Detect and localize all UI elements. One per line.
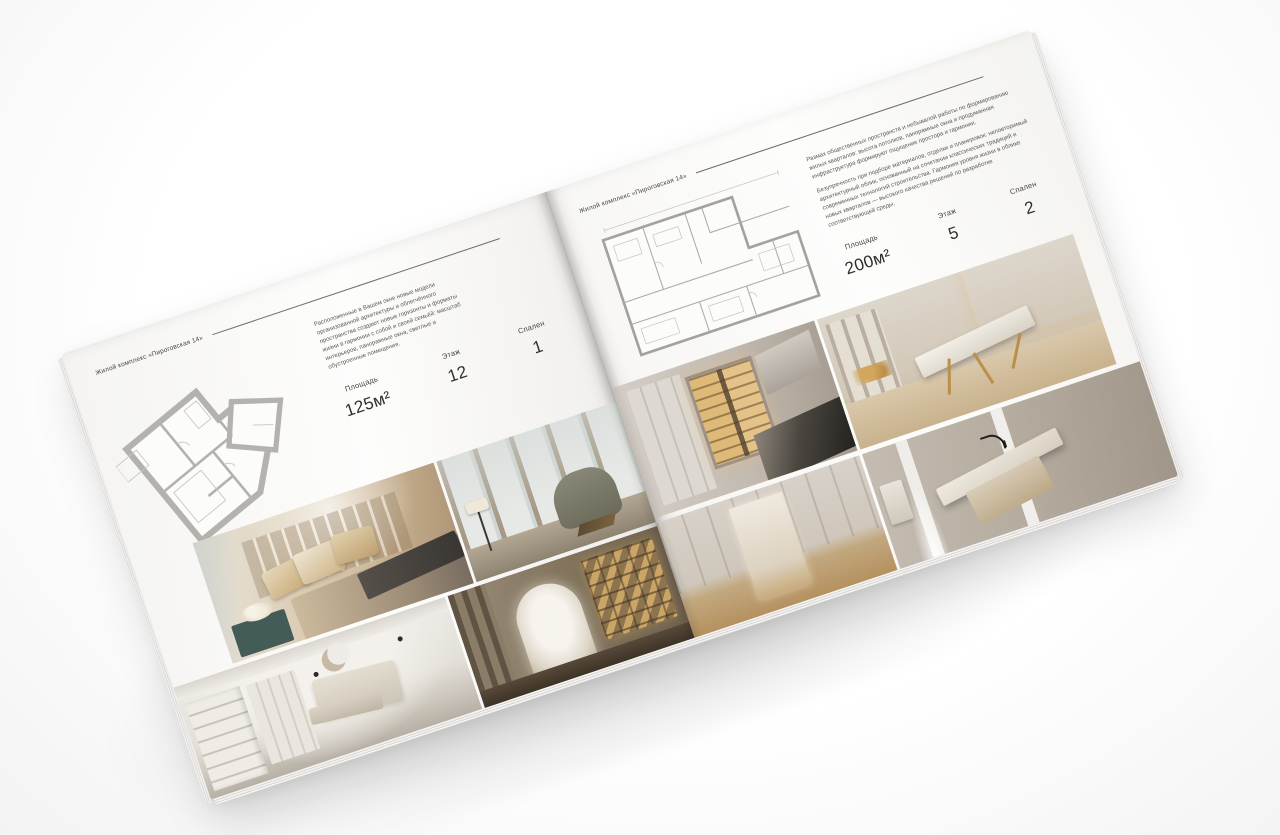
spec-bedrooms-value: 1 [522, 334, 554, 362]
spec-bedrooms-label: Спален [1009, 179, 1038, 196]
spec-bedrooms-label: Спален [517, 318, 546, 335]
spec-bedrooms: Спален 1 [517, 318, 555, 361]
kitchen-upper-cabinet [754, 329, 821, 395]
spec-floor: Этаж 5 [937, 206, 966, 246]
spec-bedrooms-value: 2 [1014, 194, 1046, 222]
spec-floor: Этаж 12 [440, 347, 470, 387]
spec-floor-value: 5 [942, 221, 966, 246]
photo-scene: Жилой комплекс «Пироговская 14» [0, 0, 1280, 835]
spec-floor-label: Этаж [440, 347, 461, 362]
spec-area-value: 200м² [843, 245, 894, 279]
spec-area-value: 125м² [343, 387, 394, 421]
spec-bedrooms: Спален 2 [1009, 179, 1047, 222]
spec-area: Площадь 125м² [338, 372, 394, 421]
wall-sconce [398, 636, 404, 642]
spec-area: Площадь 200м² [837, 230, 893, 279]
spec-floor-label: Этаж [937, 206, 958, 220]
gold-desk-leg [947, 359, 950, 395]
spec-floor-value: 12 [445, 362, 470, 387]
wall-sconce [313, 672, 319, 678]
